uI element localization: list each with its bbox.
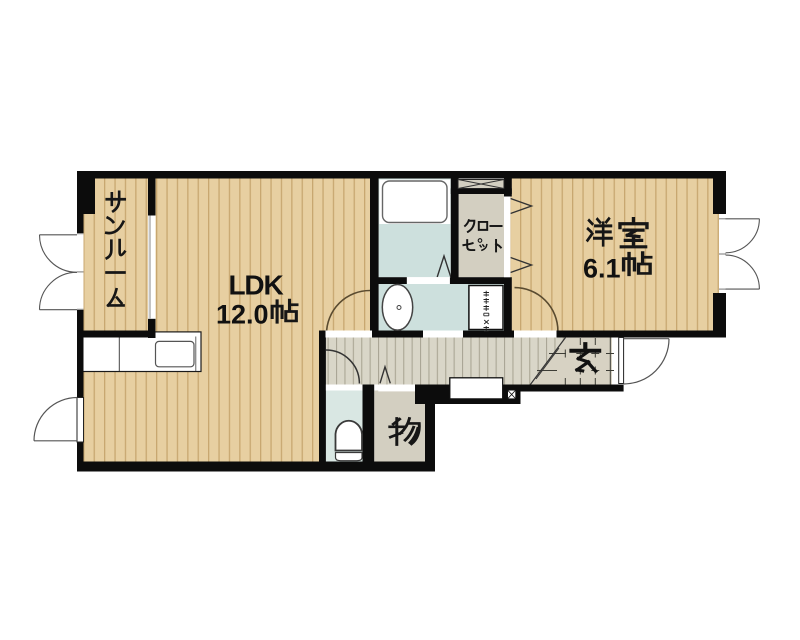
svg-text:12.0: 12.0 (216, 300, 269, 330)
svg-text:LDK: LDK (229, 270, 284, 301)
svg-text:6.1: 6.1 (583, 254, 621, 284)
